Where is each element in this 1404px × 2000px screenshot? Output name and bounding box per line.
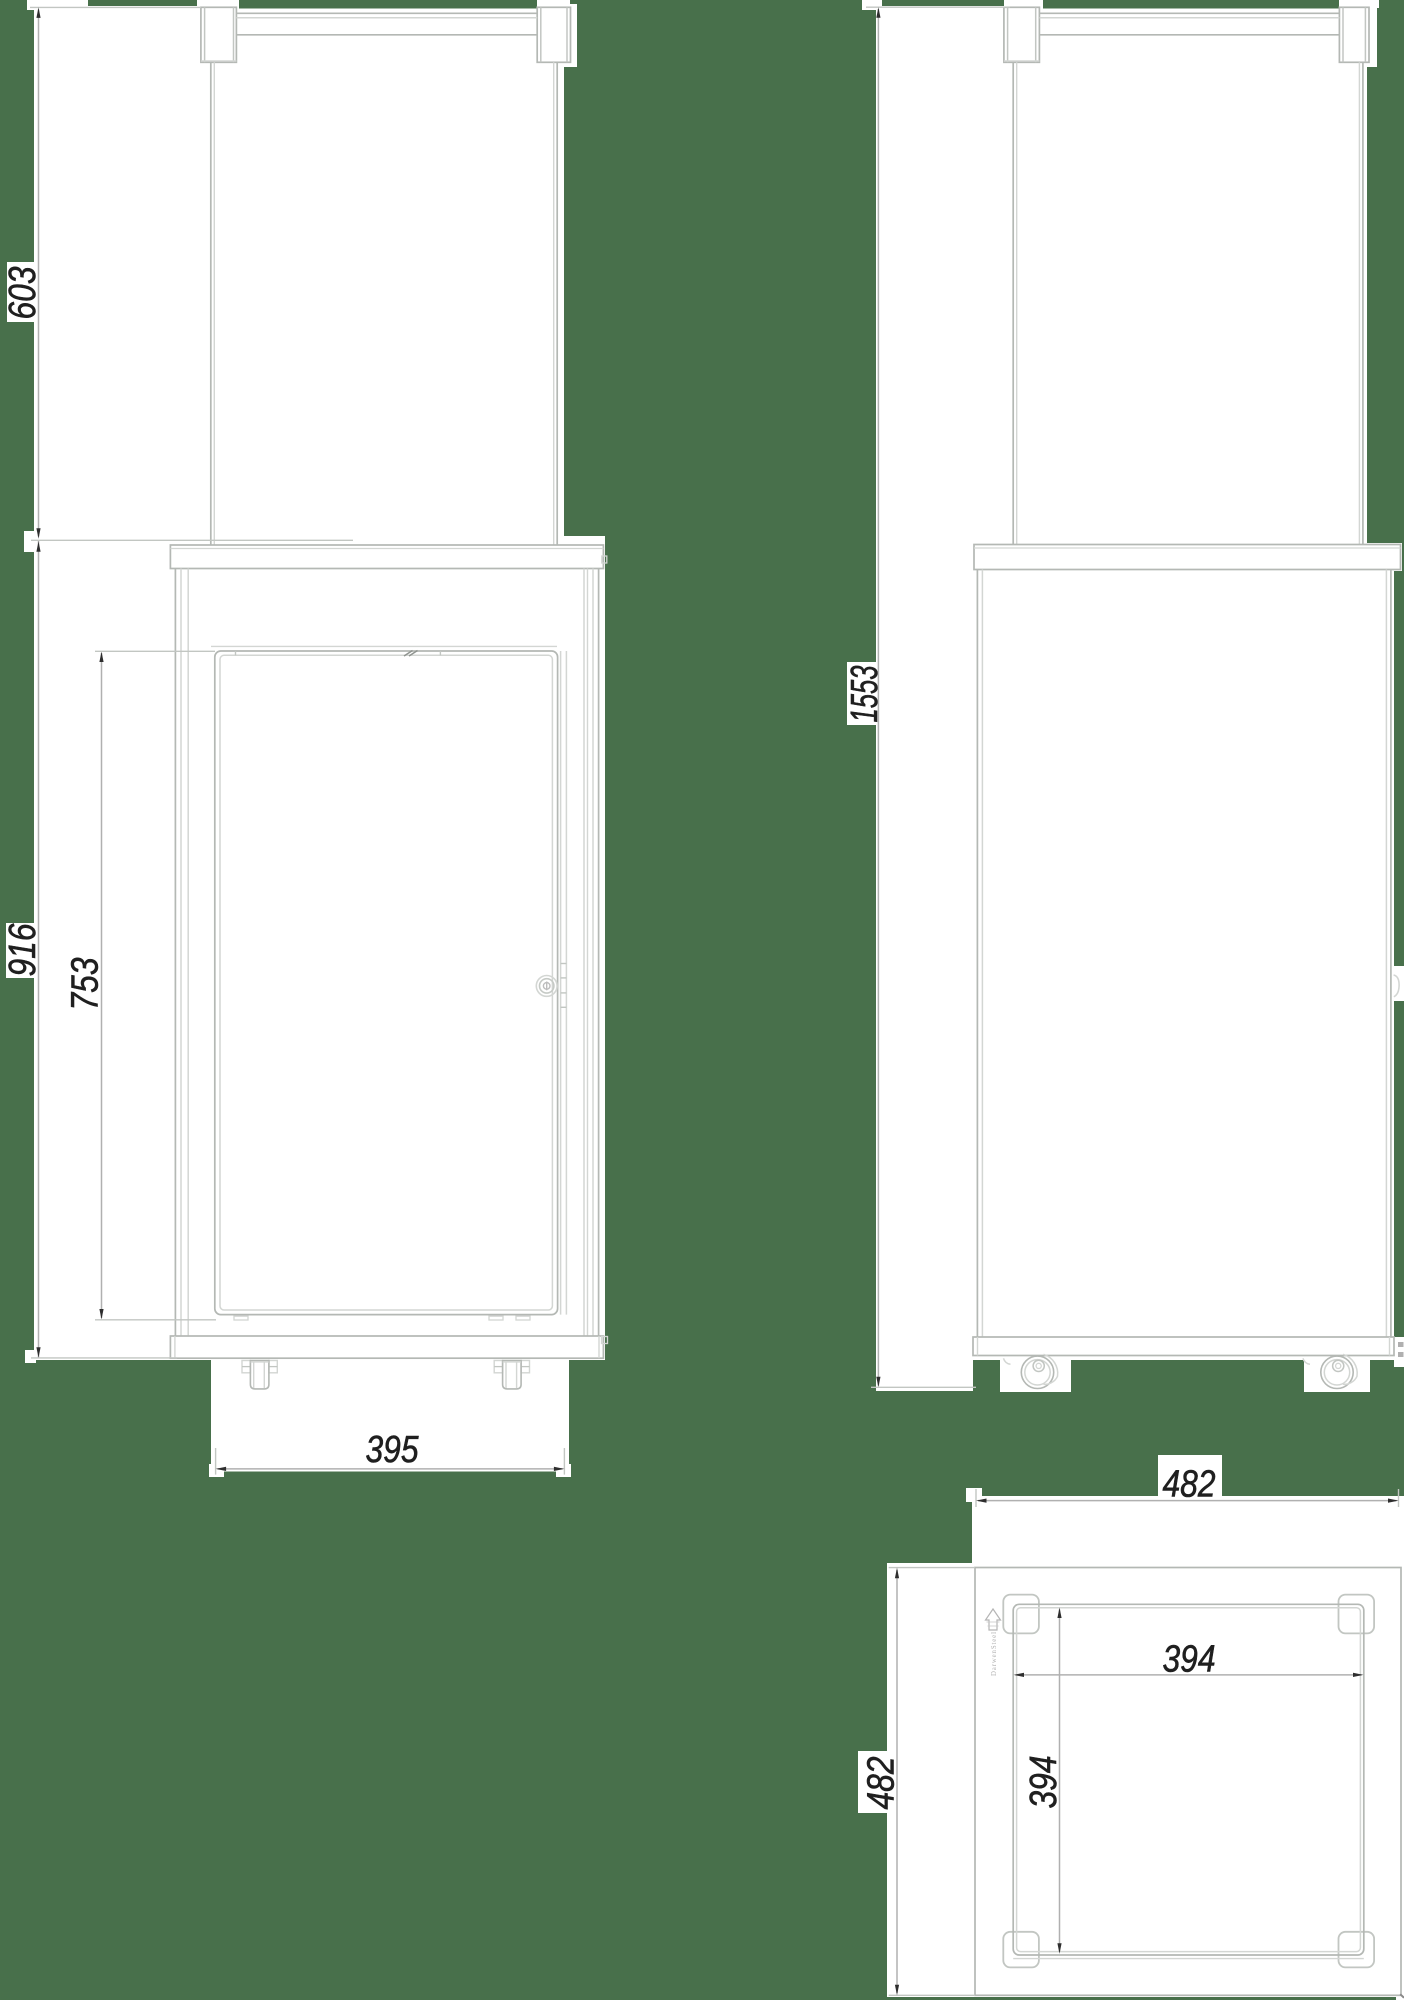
svg-text:DarwenSteel: DarwenSteel [991,1632,998,1676]
svg-text:482: 482 [1163,1463,1216,1505]
svg-text:753: 753 [64,958,106,1011]
svg-text:603: 603 [2,267,44,320]
svg-text:394: 394 [1163,1639,1216,1681]
svg-text:482: 482 [860,1757,902,1810]
svg-text:394: 394 [1023,1756,1065,1809]
svg-text:395: 395 [366,1429,420,1471]
svg-text:1553: 1553 [844,666,886,723]
svg-text:916: 916 [2,923,44,977]
